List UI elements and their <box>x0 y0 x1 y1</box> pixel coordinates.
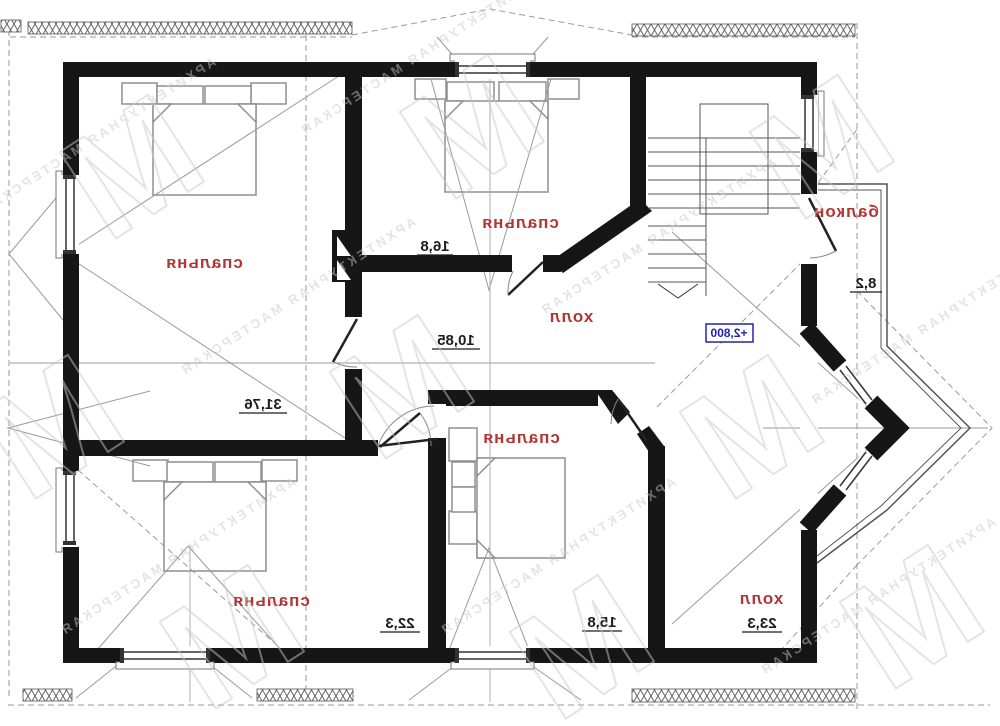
pillow <box>215 462 261 482</box>
room-label-bedroom-bottom-middle: спальня <box>482 428 560 447</box>
watermark-letter: М <box>374 22 570 231</box>
nightstand <box>548 79 579 99</box>
room-label-hall-lower: холл <box>739 589 784 608</box>
room-label-bedroom-top-middle: спальня <box>481 213 559 232</box>
floor-plan-page: спальня 31,76 спальня 16,8 холл 10,85 сп… <box>0 0 1000 726</box>
pillow <box>167 462 213 482</box>
stair-direction-arrow <box>658 284 698 298</box>
wall-stairwell-left <box>630 62 646 210</box>
room-area-bedroom-bottom-left: 22,3 <box>385 615 414 632</box>
nightstand <box>251 83 286 104</box>
bed-bottom-middle <box>449 428 565 558</box>
wall-stair-diagonal <box>551 199 652 273</box>
room-area-bedroom-top-left: 31,76 <box>244 396 282 413</box>
pillow <box>205 86 251 105</box>
floor-plan-drawing: спальня 31,76 спальня 16,8 холл 10,85 сп… <box>0 0 1000 726</box>
watermark-text: АРХИТЕКТУРНАЯ МАСТЕРСКАЯ <box>807 244 1000 408</box>
room-area-balcony: 8,2 <box>856 275 877 292</box>
room-area-bedroom-top-middle: 16,8 <box>420 238 449 255</box>
watermark-text: АРХИТЕКТУРНАЯ МАСТЕРСКАЯ <box>537 154 779 318</box>
nightstand <box>449 511 477 544</box>
pillow <box>452 462 475 487</box>
watermark-letter: М <box>0 322 150 531</box>
door-bedroom-top-middle <box>508 262 543 295</box>
wall-interior <box>362 255 512 272</box>
pillow <box>452 487 475 512</box>
room-label-bedroom-top-left: спальня <box>165 253 243 272</box>
room-area-hall-lower: 23,3 <box>747 615 776 632</box>
